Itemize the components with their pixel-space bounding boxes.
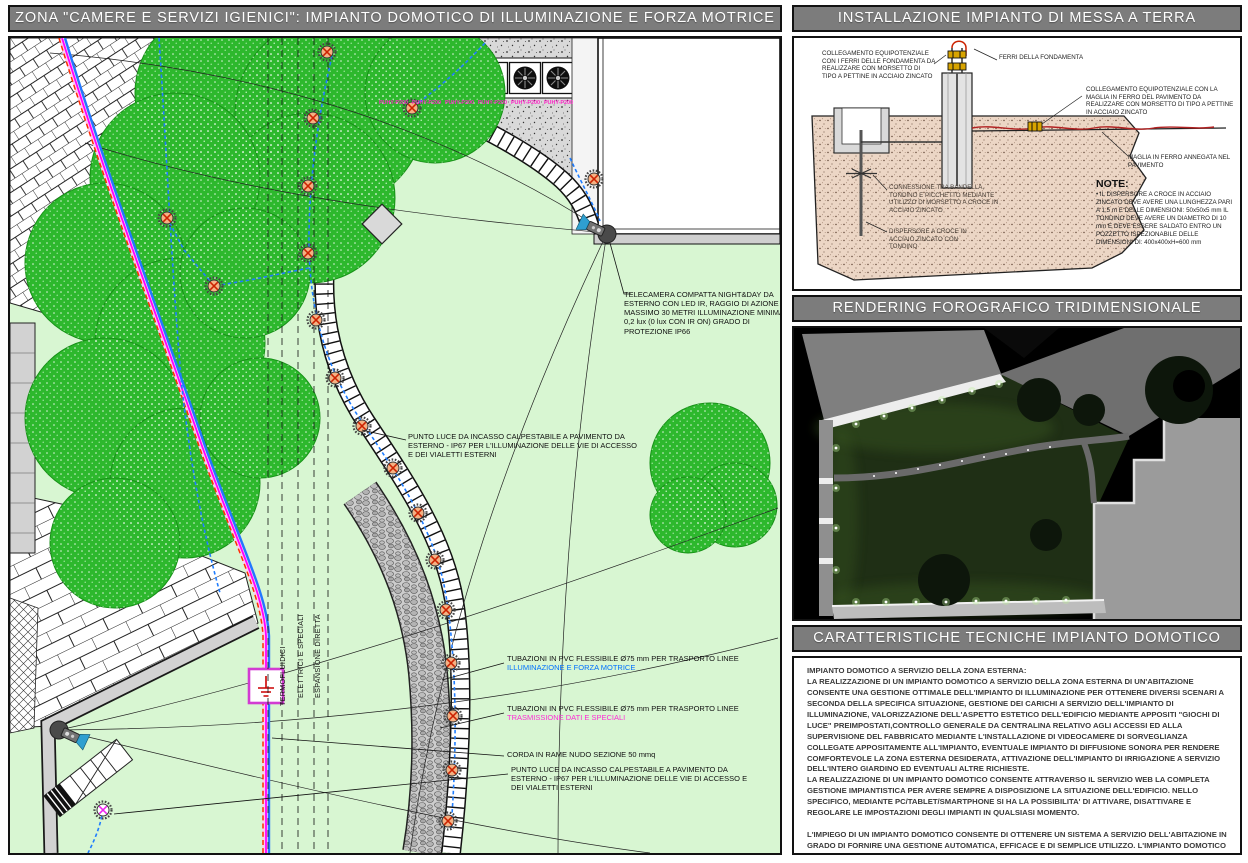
annotation-floor-light-bottom: PUNTO LUCE DA INCASSO CALPESTABILE A PAV… [511, 765, 761, 792]
grounding-panel: COLLEGAMENTO EQUIPOTENZIALE CON I FERRI … [792, 36, 1242, 291]
label-equipotential-floor: COLLEGAMENTO EQUIPOTENZIALE CON LA MAGLI… [1086, 86, 1234, 116]
label-connection: CONNESSIONE TRA BANDELLA, TONDINO E PICC… [889, 184, 1009, 214]
site-plan-panel: TELECAMERA COMPATTA NIGHT&DAY DA ESTERNO… [8, 36, 782, 855]
annotation-pvc-power: TUBAZIONI IN PVC FLESSIBILE Ø75 mm PER T… [507, 654, 757, 672]
corridor-label-espansione: ESPANSIONE DIRETTA [313, 578, 322, 698]
comb-clamp [948, 51, 966, 58]
site-plan-drawing [10, 38, 780, 853]
condensing-unit-icon [543, 63, 574, 94]
crosshatch-area [10, 598, 38, 733]
note-body: • IL DISPERSORE A CROCE IN ACCIAIO ZINCA… [1096, 191, 1236, 247]
label-earth-rod: DISPERSORE A CROCE IN ACCIAIO ZINCATO CO… [889, 228, 984, 251]
drawing-sheet: ZONA "CAMERE E SERVIZI IGIENICI": IMPIAN… [0, 0, 1248, 863]
unit-label: PUHY-P200 [509, 100, 542, 106]
condensing-unit-icon [510, 63, 541, 94]
tech-paragraph-1: LA REALIZZAZIONE DI UN IMPIANTO DOMOTICO… [807, 677, 1227, 775]
tech-paragraph-3: L'IMPIEGO DI UN IMPIANTO DOMOTICO CONSEN… [807, 830, 1227, 855]
tech-panel: IMPIANTO DOMOTICO A SERVIZIO DELLA ZONA … [792, 656, 1242, 855]
tech-paragraph-2: LA REALIZZAZIONE DI UN IMPIANTO DOMOTICO… [807, 775, 1227, 819]
grounding-title: INSTALLAZIONE IMPIANTO DI MESSA A TERRA [838, 10, 1196, 26]
plan-title-bar: ZONA "CAMERE E SERVIZI IGIENICI": IMPIAN… [8, 5, 782, 32]
rendering-title: RENDERING FOROGRAFICO TRIDIMENSIONALE [833, 300, 1202, 316]
comb-clamp [1028, 122, 1042, 131]
plan-title: ZONA "CAMERE E SERVIZI IGIENICI": IMPIAN… [15, 10, 775, 26]
note-block: NOTE: • IL DISPERSORE A CROCE IN ACCIAIO… [1096, 178, 1236, 247]
tech-title-bar: CARATTERISTICHE TECNICHE IMPIANTO DOMOTI… [792, 625, 1242, 652]
rendering-title-bar: RENDERING FOROGRAFICO TRIDIMENSIONALE [792, 295, 1242, 322]
rendering-panel [792, 326, 1242, 621]
corridor-label-termofluidici: TERMOFLUIDICI [278, 586, 287, 706]
annotation-floor-light-top: PUNTO LUCE DA INCASSO CALPESTABILE A PAV… [408, 432, 643, 459]
annotation-pvc-data: TUBAZIONI IN PVC FLESSIBILE Ø75 mm PER T… [507, 704, 757, 722]
unit-label: PUHY-P200 [443, 100, 476, 106]
label-foundation-bars: FERRI DELLA FONDAMENTA [999, 54, 1094, 62]
unit-label: PUHY-P200 [410, 100, 443, 106]
night-rendering [794, 328, 1240, 619]
tech-text: IMPIANTO DOMOTICO A SERVIZIO DELLA ZONA … [794, 658, 1240, 853]
note-title: NOTE: [1096, 178, 1236, 191]
unit-label: PUHY-P200 [377, 100, 410, 106]
unit-label: PUHY-P200 [476, 100, 509, 106]
annotation-copper-rope: CORDA IN RAME NUDO SEZIONE 50 mmq [507, 750, 757, 759]
annotation-camera: TELECAMERA COMPATTA NIGHT&DAY DA ESTERNO… [624, 290, 782, 336]
building-footprint [598, 38, 780, 234]
tech-paragraph-heading: IMPIANTO DOMOTICO A SERVIZIO DELLA ZONA … [807, 666, 1227, 677]
label-floor-mesh: MAGLIA IN FERRO ANNEGATA NEL PAVIMENTO [1128, 154, 1233, 169]
corridor-label-elettrici: ELETTRICI E SPECIALI [296, 578, 305, 698]
unit-label: PUHY-P200 [542, 100, 575, 106]
grounding-title-bar: INSTALLAZIONE IMPIANTO DI MESSA A TERRA [792, 5, 1242, 32]
tech-title: CARATTERISTICHE TECNICHE IMPIANTO DOMOTI… [813, 630, 1221, 646]
comb-clamp [948, 63, 966, 70]
label-equipotential-foundation: COLLEGAMENTO EQUIPOTENZIALE CON I FERRI … [822, 50, 936, 80]
